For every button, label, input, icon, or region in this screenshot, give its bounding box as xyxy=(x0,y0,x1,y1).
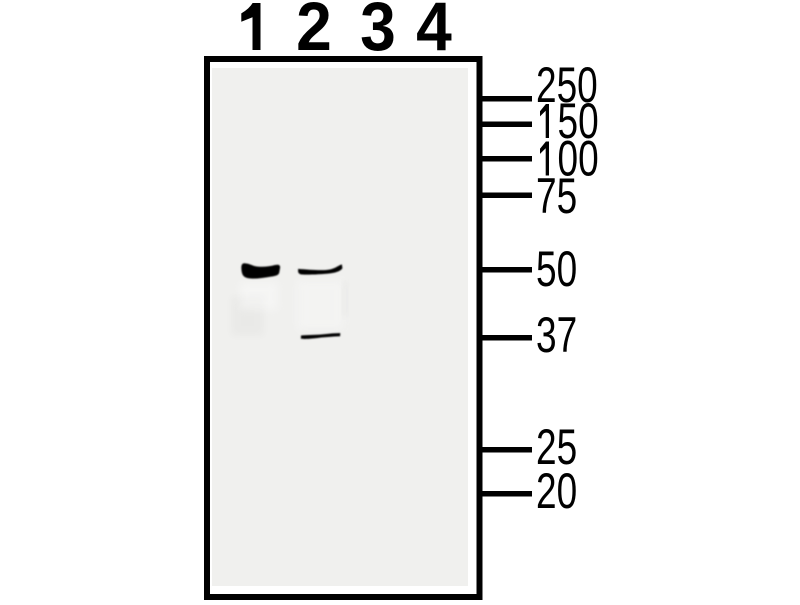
svg-text:50: 50 xyxy=(536,242,577,298)
svg-text:75: 75 xyxy=(536,169,577,225)
svg-text:2: 2 xyxy=(296,0,332,66)
svg-text:37: 37 xyxy=(536,308,577,364)
svg-text:4: 4 xyxy=(416,0,452,66)
svg-text:20: 20 xyxy=(536,464,577,520)
svg-text:3: 3 xyxy=(360,0,396,66)
